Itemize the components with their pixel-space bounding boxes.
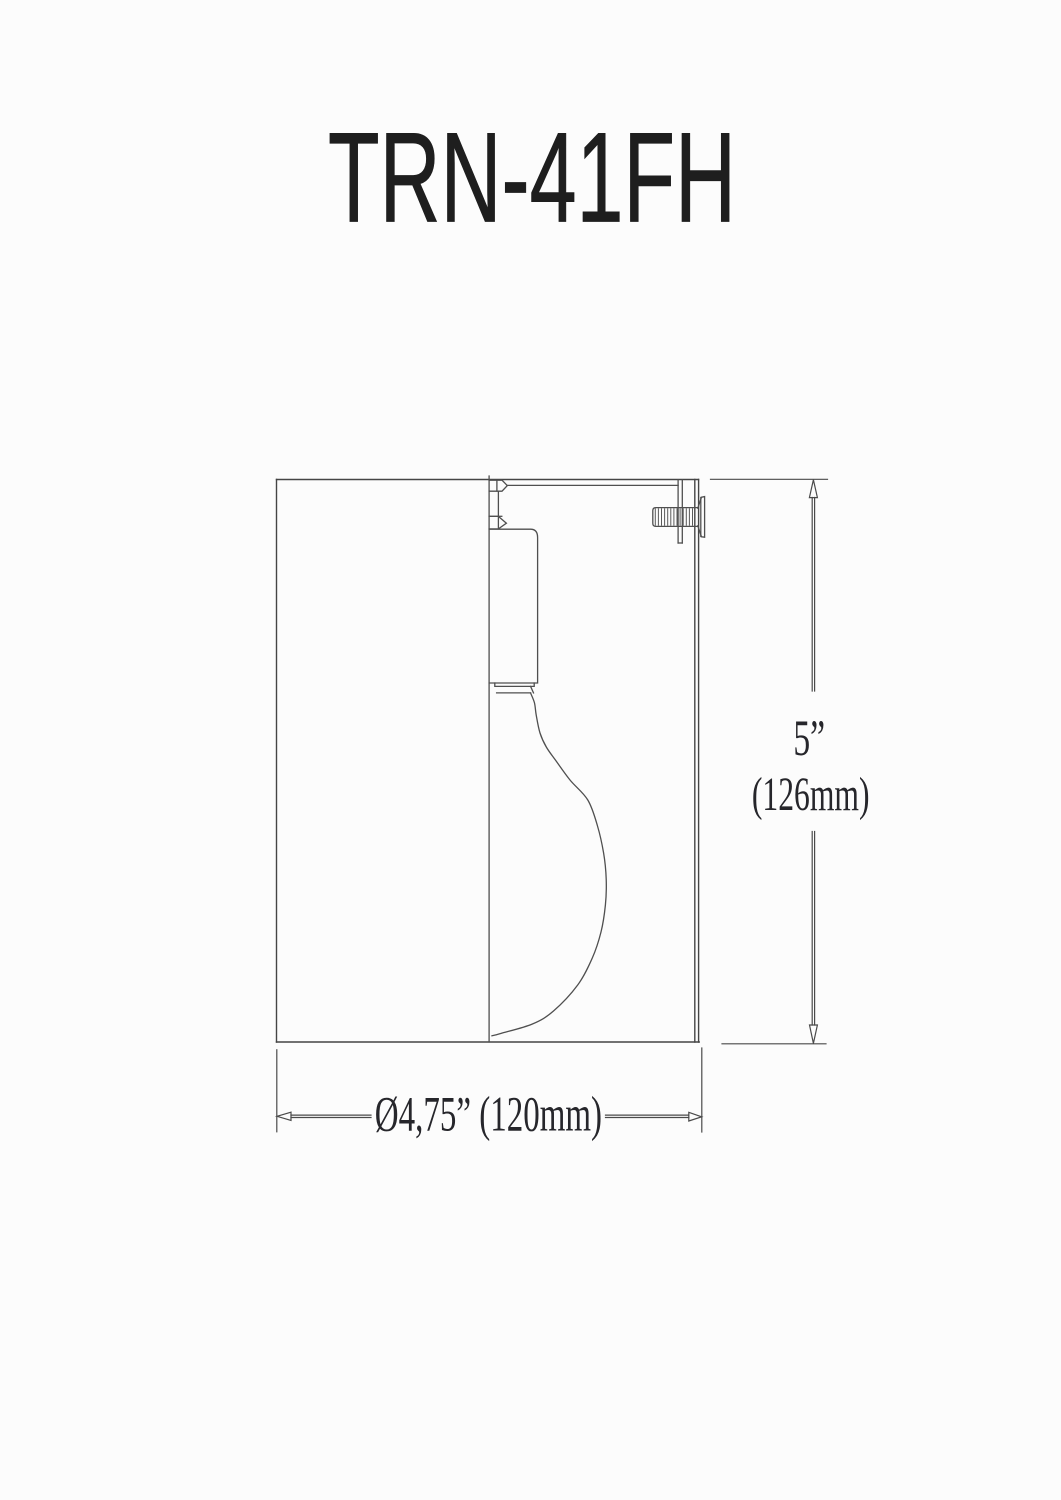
svg-text:TRN-41FH: TRN-41FH [328, 106, 736, 249]
svg-text:Ø4,75” (120mm): Ø4,75” (120mm) [375, 1088, 602, 1142]
svg-text:(126mm): (126mm) [752, 767, 870, 821]
svg-text:5”: 5” [793, 711, 825, 766]
